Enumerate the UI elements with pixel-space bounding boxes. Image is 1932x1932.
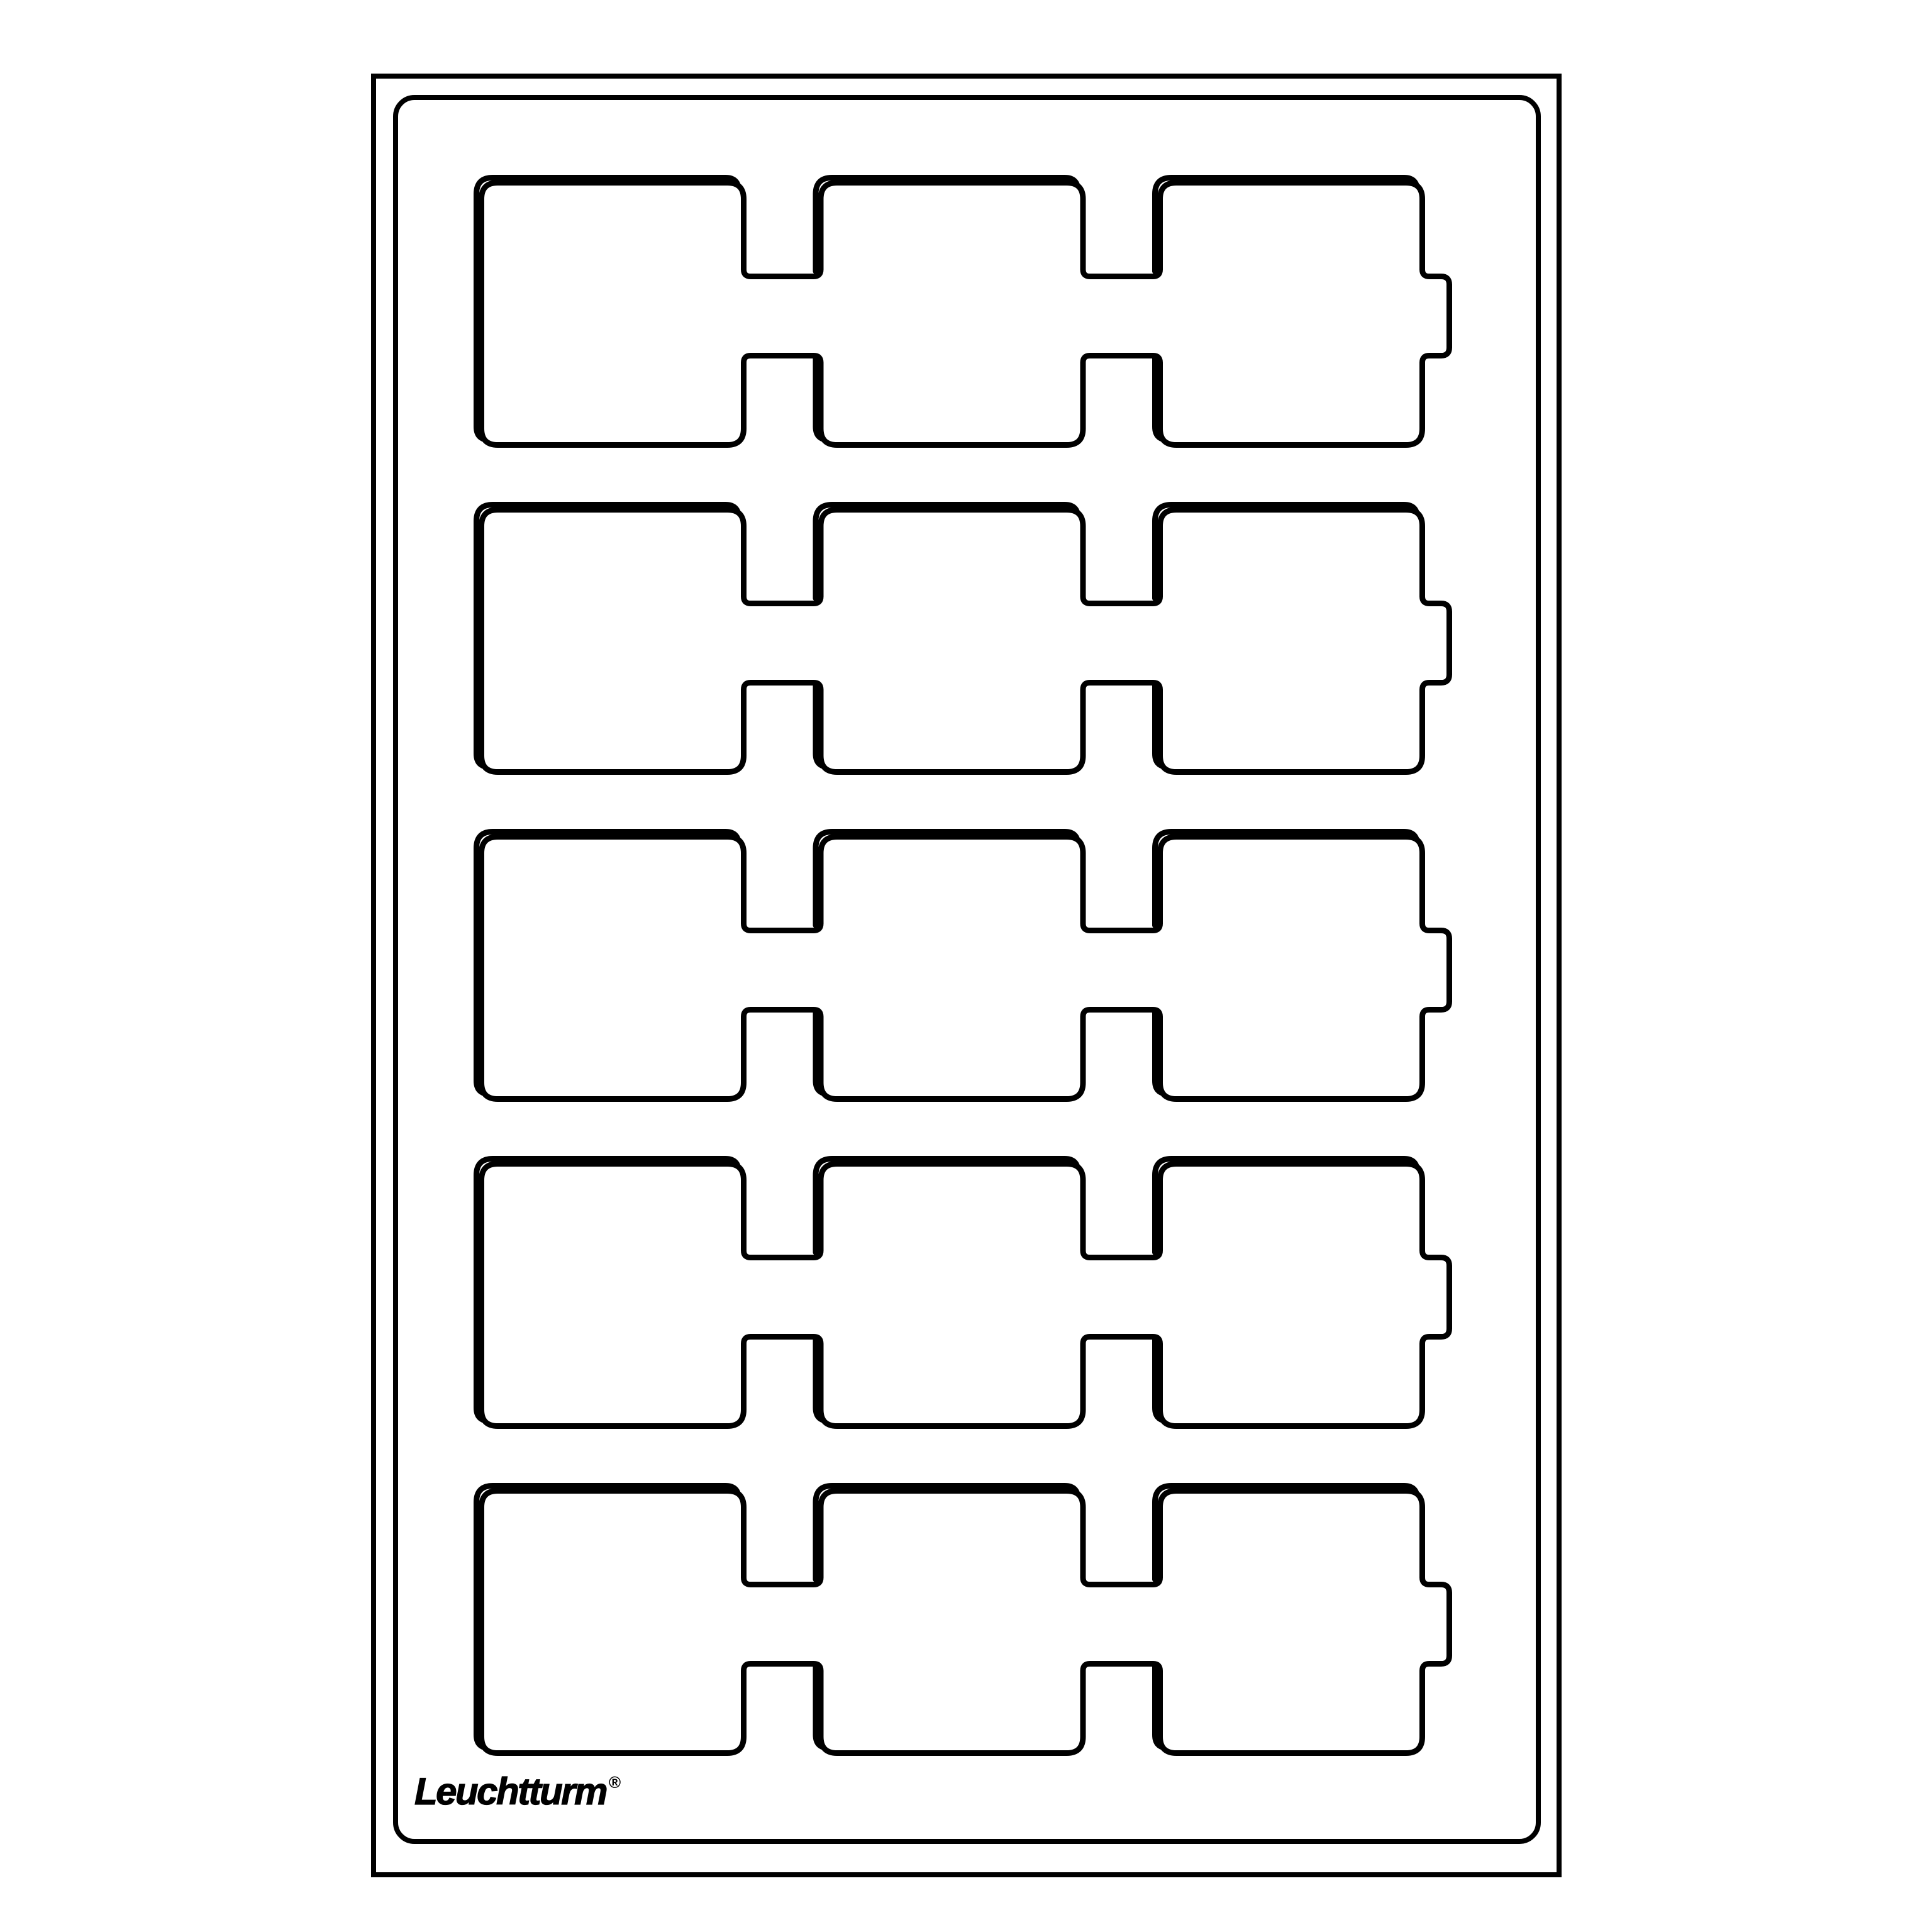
coin-tray-diagram [0,0,1932,1932]
tray-row-cavity-outline [482,1491,1450,1753]
coin-tray-diagram-page: Leuchtturm® [0,0,1932,1932]
compartment-rows [477,178,1450,1753]
tray-row [477,178,1450,445]
tray-row [477,1486,1450,1753]
tray-row-cavity-outline [482,1164,1450,1426]
tray-row-cavity-outline [482,510,1450,772]
registered-trademark-symbol: ® [609,1773,621,1792]
tray-row-cavity-outline [482,183,1450,445]
leuchtturm-logo-text: Leuchtturm [414,1770,606,1813]
leuchtturm-logo: Leuchtturm® [414,1773,621,1818]
tray-row [477,832,1450,1099]
tray-row [477,1159,1450,1426]
tray-row-cavity-outline [482,837,1450,1099]
tray-row [477,505,1450,772]
